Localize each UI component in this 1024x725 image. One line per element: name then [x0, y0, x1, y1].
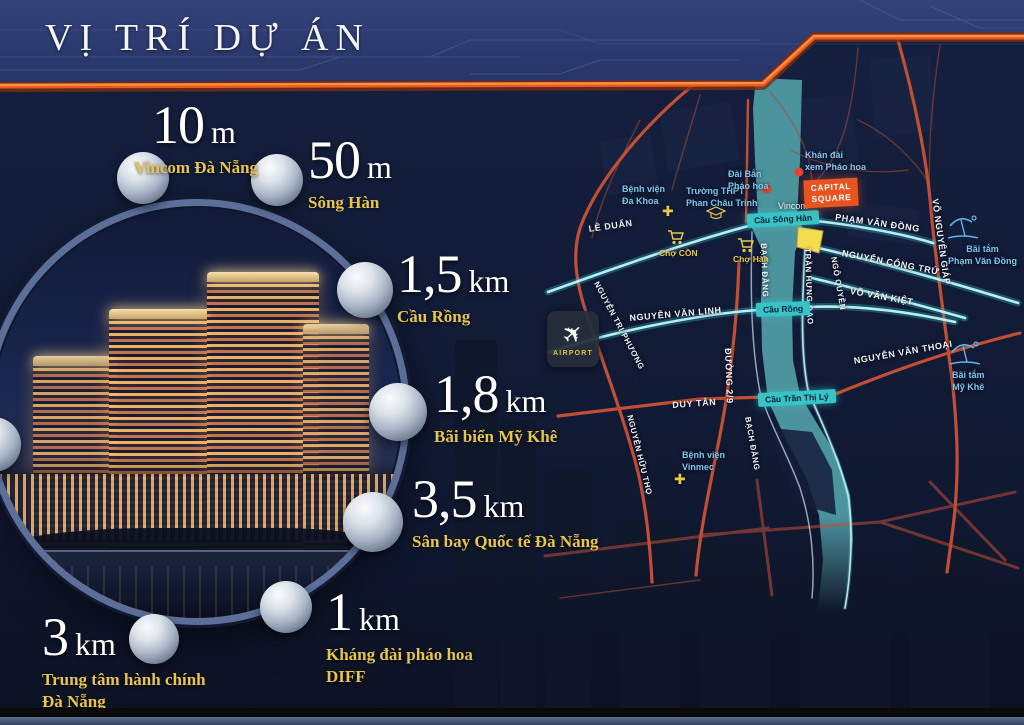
distance-diff: 1km Kháng đài pháo hoaDIFF	[326, 585, 473, 688]
street-bach-dang: BẠCH ĐẰNG	[759, 243, 770, 298]
ring-sphere	[343, 492, 403, 552]
landmark-vincom: Vincom	[778, 201, 808, 211]
distance-value: 1	[326, 582, 352, 642]
landmark-benh-vien-da-khoa: Bệnh việnĐa Khoa	[622, 184, 665, 207]
landmark-bai-tam-my-khe: Bãi tắmMỹ Khê	[952, 370, 985, 393]
project-photo-circle	[0, 199, 410, 625]
distance-place: Bãi biển Mỹ Khê	[434, 427, 557, 446]
shopping-cart-icon	[737, 237, 755, 254]
ring-sphere	[251, 154, 303, 206]
beach-umbrella-icon	[946, 212, 980, 242]
distance-place: Kháng đài pháo hoa	[326, 645, 473, 664]
distance-vincom: 10m Vincom Đà Nẵng	[152, 98, 258, 179]
distance-admin-center: 3km Trung tâm hành chínhĐà Nẵng	[42, 610, 206, 713]
shopping-cart-icon	[667, 229, 685, 246]
distance-unit: m	[367, 149, 392, 185]
capital-square-badge: CAPITAL SQUARE	[803, 178, 859, 209]
distance-my-khe: 1,8km Bãi biển Mỹ Khê	[434, 367, 557, 448]
hospital-cross-icon: ✚	[674, 472, 686, 486]
distance-value: 50	[308, 130, 360, 190]
graduation-cap-icon	[706, 206, 726, 221]
distance-value: 1,5	[397, 244, 462, 304]
bottom-blue-strip	[0, 717, 1024, 725]
distance-value: 10	[152, 95, 204, 155]
distance-place-line2: DIFF	[326, 667, 366, 686]
landmark-khan-dai-xem-phao-hoa: Khán đàixem Pháo hoa	[805, 150, 866, 173]
distance-unit: km	[75, 626, 116, 662]
distance-value: 3,5	[412, 469, 477, 529]
distance-unit: m	[211, 114, 236, 150]
distance-cau-rong: 1,5km Cầu Rồng	[397, 247, 509, 328]
distance-unit: km	[469, 263, 510, 299]
distance-unit: km	[359, 601, 400, 637]
distance-value: 1,8	[434, 364, 499, 424]
hospital-cross-icon: ✚	[662, 204, 674, 218]
ring-sphere	[260, 581, 312, 633]
airport-badge: ✈ AIRPORT	[547, 311, 599, 367]
ring-sphere	[337, 262, 393, 318]
badge-line1: CAPITAL	[810, 181, 851, 193]
landmark-cho-han: Chợ Hàn	[733, 254, 769, 264]
street-duong-2-9: ĐƯỜNG 2/9	[723, 348, 735, 404]
distance-airport: 3,5km Sân bay Quốc tế Đà Nẵng	[412, 472, 599, 553]
distance-place: Sân bay Quốc tế Đà Nẵng	[412, 532, 599, 551]
landmark-cho-con: Chợ CỒN	[659, 248, 698, 258]
beach-umbrella-icon	[948, 338, 982, 368]
fireworks-stand-dot	[795, 168, 804, 177]
distance-place: Sông Hàn	[308, 193, 379, 212]
ring-sphere	[369, 383, 427, 441]
landmark-dai-ban-phao-hoa: Đài BắnPháo hoa	[728, 169, 769, 192]
distance-place: Trung tâm hành chính	[42, 670, 206, 689]
distance-place: Vincom Đà Nẵng	[134, 158, 258, 177]
distance-song-han: 50m Sông Hàn	[308, 133, 392, 214]
landmark-bai-tam-pham-van-dong: Bãi tắmPhạm Văn Đồng	[948, 244, 1017, 267]
distance-value: 3	[42, 607, 68, 667]
bridge-cau-rong: Cầu Rồng	[756, 301, 811, 317]
distance-unit: km	[506, 383, 547, 419]
landmark-benh-vien-vinmec: Bệnh việnVinmec	[682, 450, 725, 473]
bottom-black-bar	[0, 708, 1024, 717]
airplane-icon: ✈	[557, 318, 589, 351]
distance-place: Cầu Rồng	[397, 307, 470, 326]
page-title: VỊ TRÍ DỰ ÁN	[45, 16, 370, 60]
distance-unit: km	[484, 488, 525, 524]
badge-line2: SQUARE	[811, 192, 851, 204]
